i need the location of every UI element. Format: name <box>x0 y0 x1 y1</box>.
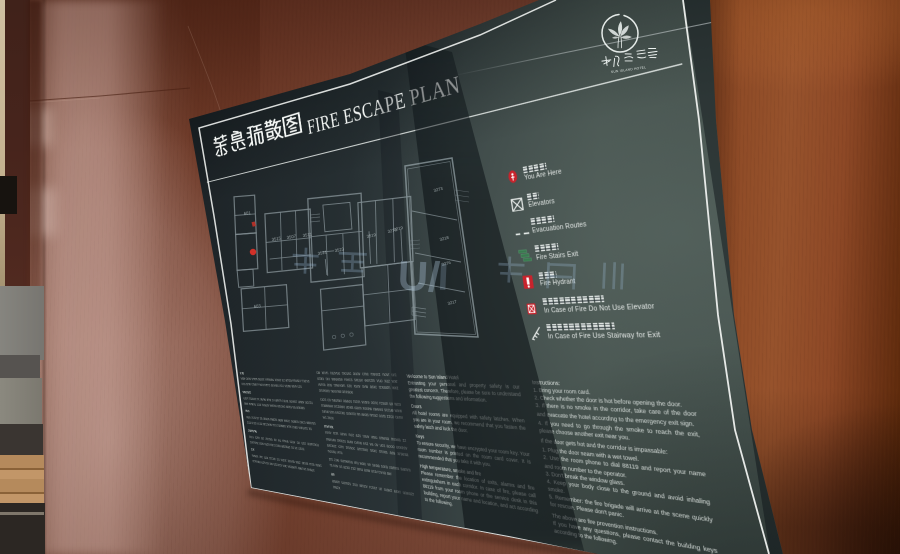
svg-text:3270: 3270 <box>387 227 398 234</box>
svg-text:U/: U/ <box>397 252 441 301</box>
svg-text:3218: 3218 <box>439 235 450 242</box>
svg-text:601: 601 <box>243 210 251 216</box>
svg-text:3217: 3217 <box>447 299 458 306</box>
svg-text:3521: 3521 <box>317 249 328 256</box>
svg-text:3273: 3273 <box>433 186 444 193</box>
svg-text:603: 603 <box>253 303 261 309</box>
svg-text:SUN ISLAND HOTEL: SUN ISLAND HOTEL <box>611 65 647 74</box>
svg-text:I: I <box>437 256 449 298</box>
svg-text:3519: 3519 <box>366 232 377 239</box>
